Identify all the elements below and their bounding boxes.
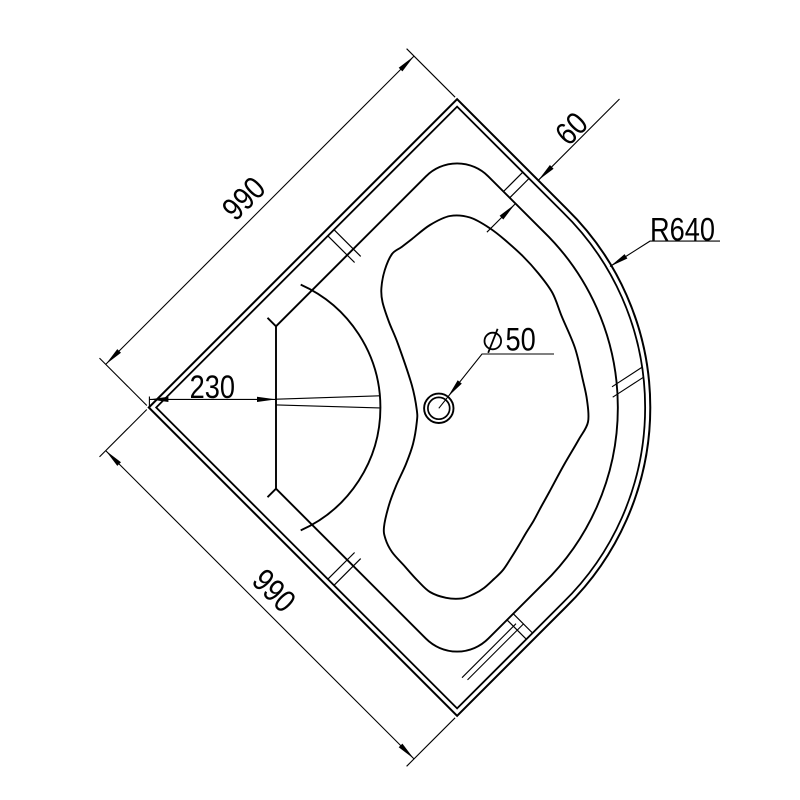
svg-text:R640: R640 (650, 212, 715, 248)
svg-text:230: 230 (190, 370, 235, 406)
svg-text:990: 990 (216, 170, 273, 227)
svg-text:60: 60 (549, 106, 596, 153)
svg-text:990: 990 (245, 562, 302, 619)
svg-text:50: 50 (506, 323, 536, 359)
